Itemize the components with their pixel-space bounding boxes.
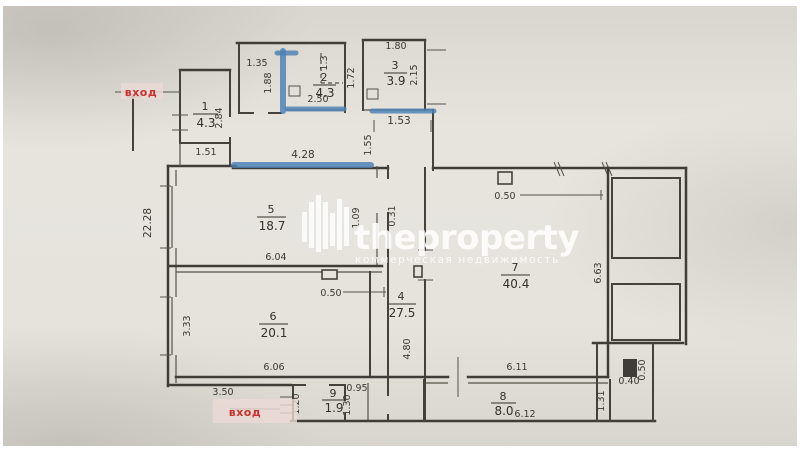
entrance-bottom-label: вход xyxy=(229,406,262,419)
room-label-2: 2 4.3 xyxy=(313,71,336,100)
dim-label: 1.31 xyxy=(596,390,607,411)
entrance-top-label: вход xyxy=(125,86,158,99)
svg-text:3: 3 xyxy=(392,59,399,72)
room-label-3: 3 3.9 xyxy=(384,59,407,88)
dim-label: 0.50 xyxy=(494,191,515,202)
screenshot-root: { "watermark": { "brand": "theproperty",… xyxy=(0,0,800,453)
room-label-6: 6 20.1 xyxy=(259,310,288,340)
svg-text:3.9: 3.9 xyxy=(386,74,405,88)
dim-label: 0.95 xyxy=(346,383,367,394)
svg-text:4.3: 4.3 xyxy=(315,86,334,100)
svg-text:9: 9 xyxy=(330,387,337,400)
watermark-subtitle: коммерческая недвижимость xyxy=(355,254,560,266)
dim-label: 3.33 xyxy=(182,315,193,336)
dim-label: 0.50 xyxy=(637,359,648,380)
watermark-brand: theproperty xyxy=(354,218,579,258)
svg-text:4: 4 xyxy=(398,290,405,303)
dim-label: 2.84 xyxy=(214,107,225,128)
floor-plan-svg: 1.35 1.88 1.3 2.50 1.72 1.80 2.15 1.53 1… xyxy=(0,0,800,453)
watermark-logo-icon xyxy=(302,195,349,252)
dim-label: 6.04 xyxy=(265,252,286,263)
room-label-4: 4 27.5 xyxy=(387,290,416,320)
dim-label: 1.51 xyxy=(195,147,216,158)
dim-label: 0.50 xyxy=(320,288,341,299)
dim-label: 1.30 xyxy=(342,394,353,415)
dim-label: 6.11 xyxy=(506,362,527,373)
svg-text:8.0: 8.0 xyxy=(494,404,513,418)
svg-text:2: 2 xyxy=(321,71,328,84)
svg-text:8: 8 xyxy=(500,390,507,403)
svg-text:6: 6 xyxy=(270,310,277,323)
dim-label: 1.88 xyxy=(263,72,274,93)
svg-text:18.7: 18.7 xyxy=(259,219,286,233)
dim-label: 1.80 xyxy=(385,41,406,52)
svg-text:20.1: 20.1 xyxy=(261,326,288,340)
svg-text:1.9: 1.9 xyxy=(324,401,343,415)
dim-label: 1.3 xyxy=(319,55,330,70)
svg-text:5: 5 xyxy=(268,203,275,216)
room-label-8: 8 8.0 xyxy=(491,390,516,418)
svg-text:27.5: 27.5 xyxy=(389,306,416,320)
dim-label: 4.28 xyxy=(291,149,314,161)
column xyxy=(623,359,637,377)
room-label-9: 9 1.9 xyxy=(322,387,345,415)
dim-label: 1.55 xyxy=(363,134,374,155)
dim-label: 1.53 xyxy=(387,115,410,127)
svg-text:40.4: 40.4 xyxy=(503,277,530,291)
dim-label: 1.72 xyxy=(346,67,357,88)
svg-text:4.3: 4.3 xyxy=(196,116,215,130)
dim-label: 22.28 xyxy=(142,208,154,238)
dim-label: 3.50 xyxy=(212,387,233,398)
svg-text:1: 1 xyxy=(202,100,209,113)
room-label-5: 5 18.7 xyxy=(257,203,286,233)
dim-label: 4.80 xyxy=(402,338,413,359)
watermark: theproperty коммерческая недвижимость xyxy=(302,195,579,266)
dim-label: 2.15 xyxy=(409,64,420,85)
dim-label: 6.63 xyxy=(593,262,604,283)
dim-label: 6.12 xyxy=(514,409,535,420)
dim-label: 1.35 xyxy=(246,58,267,69)
dim-label: 6.06 xyxy=(263,362,284,373)
